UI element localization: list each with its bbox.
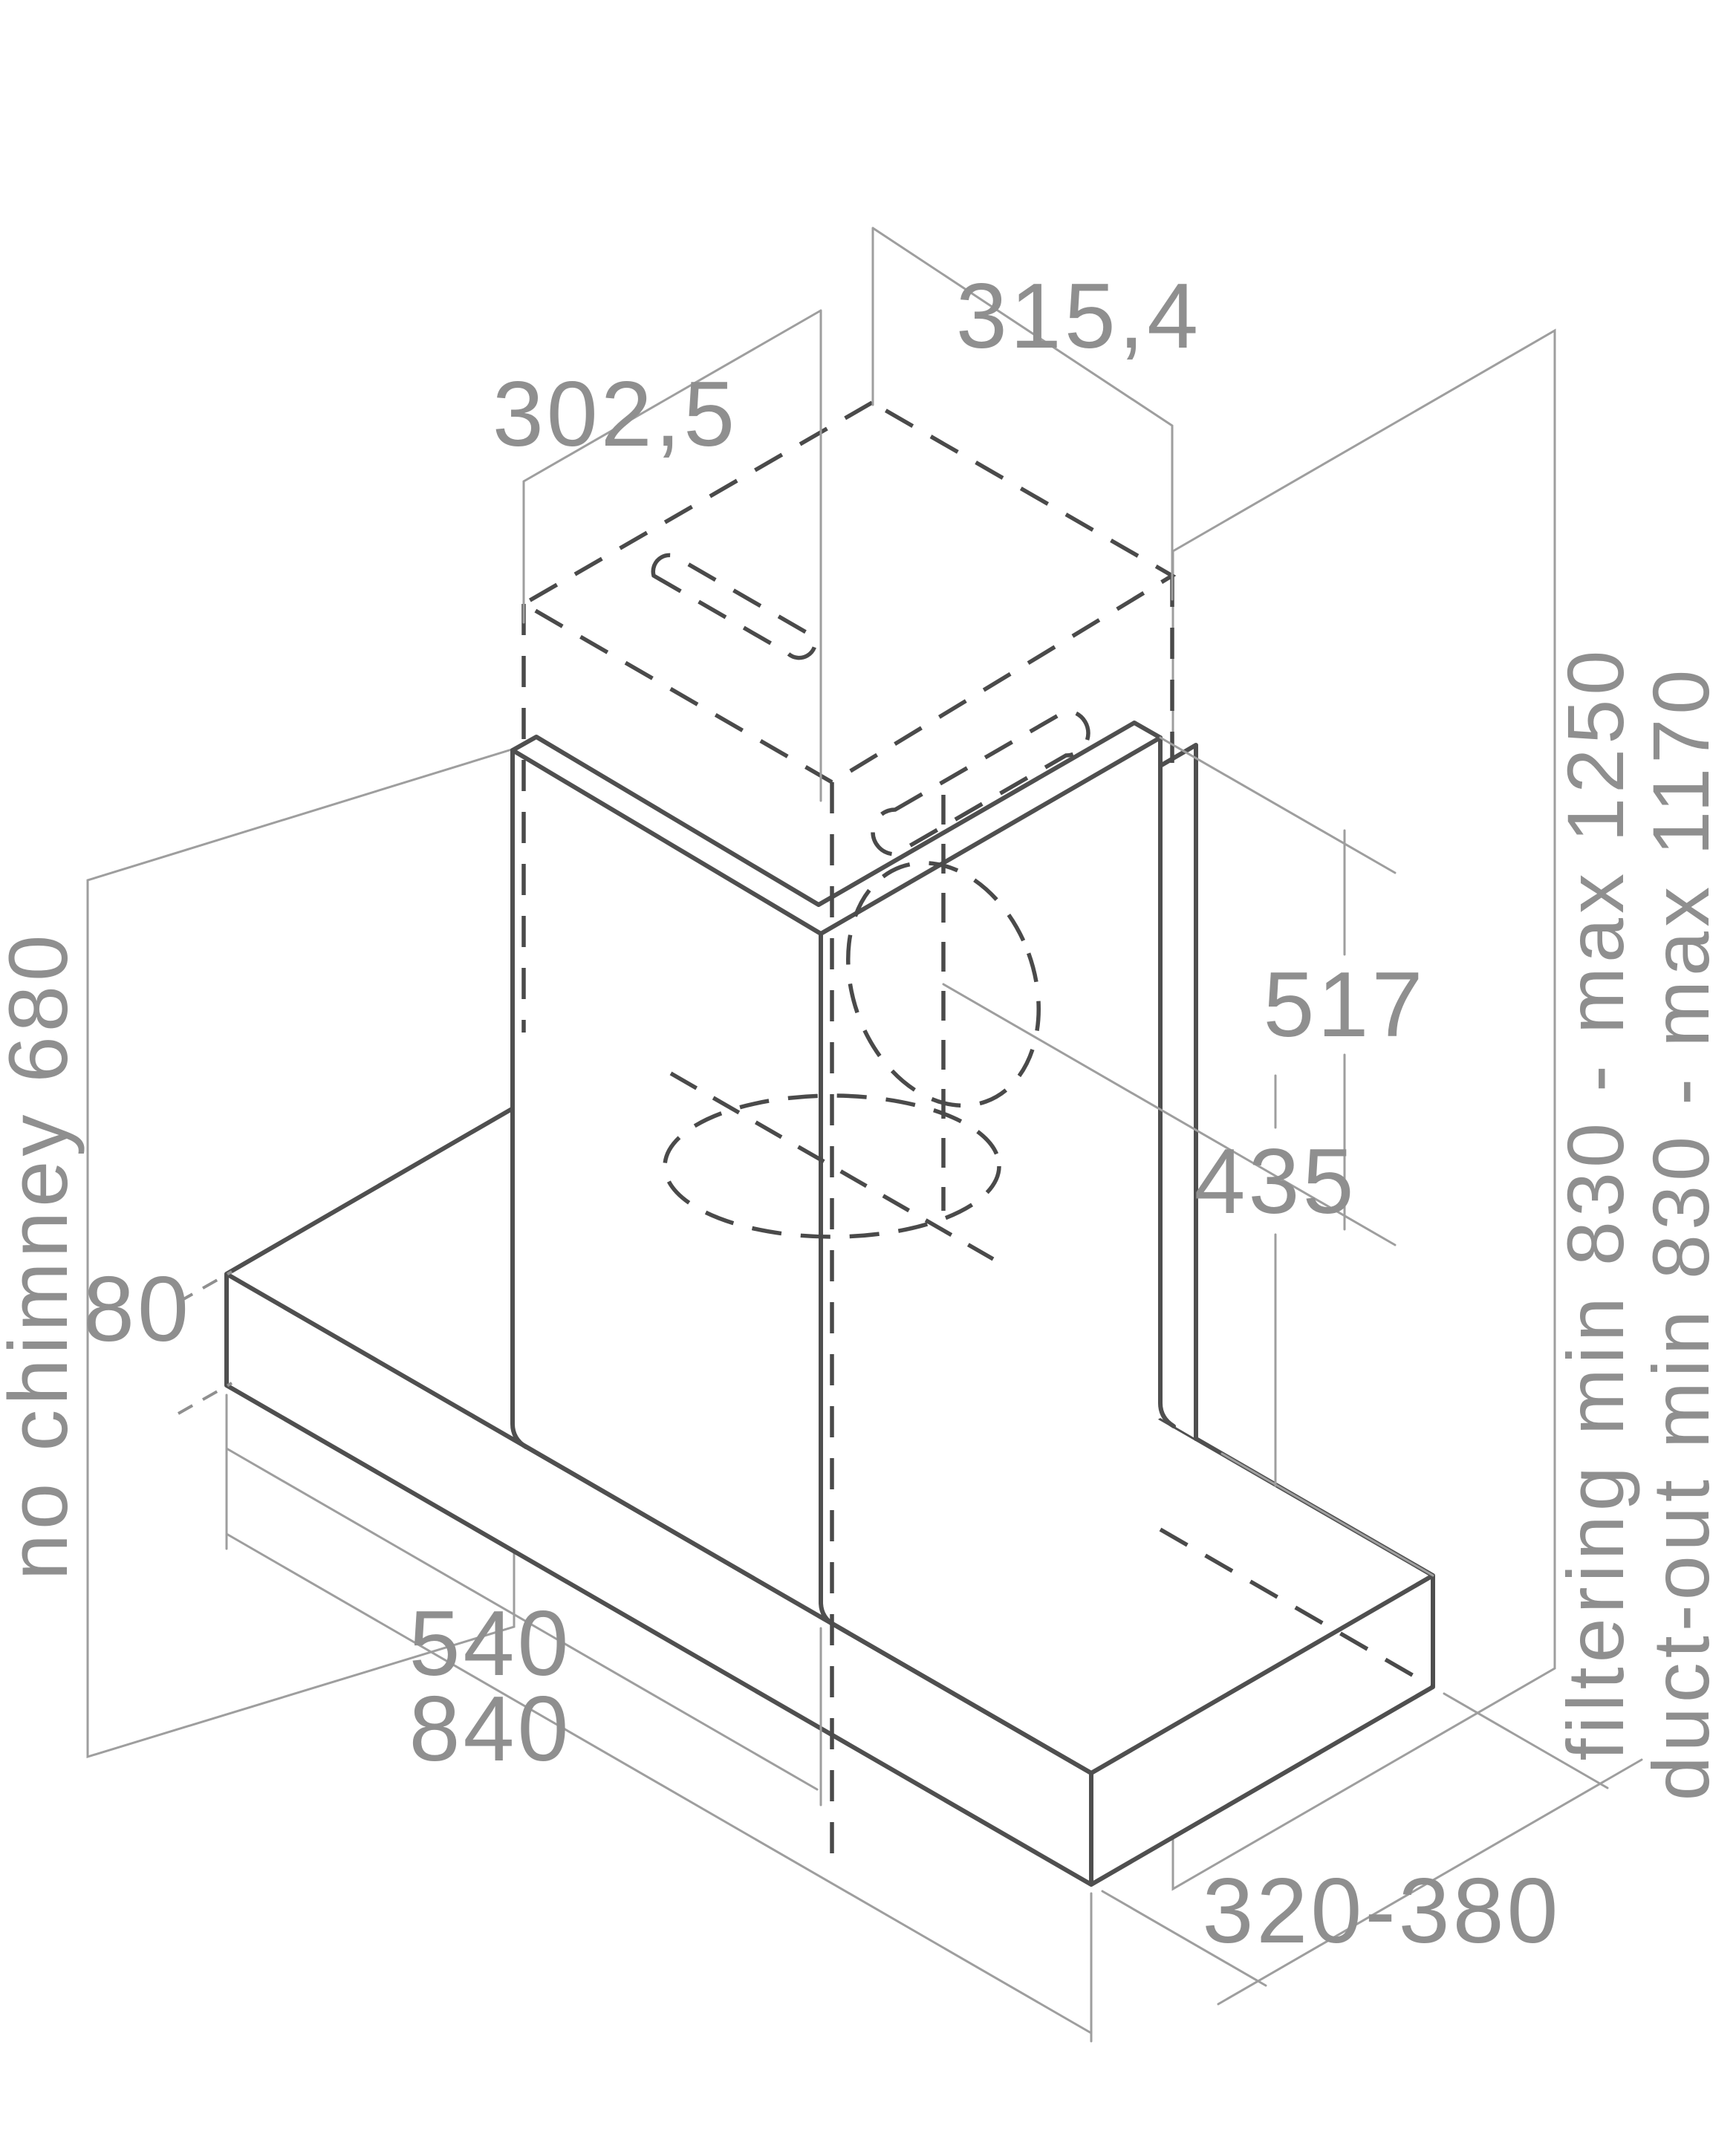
label-840: 840 — [409, 1678, 572, 1781]
label-filtering-range: filtering min 830 - max 1250 — [1550, 646, 1640, 1761]
hood-dimension-diagram: 302,5 315,4 517 435 80 540 840 320-380 n… — [0, 0, 1736, 2143]
label-depth-range: 320-380 — [1202, 1860, 1561, 1962]
label-517: 517 — [1264, 954, 1426, 1056]
label-duct-out-range: duct-out min 830 - max 1170 — [1636, 666, 1726, 1801]
technical-drawing-page: 302,5 315,4 517 435 80 540 840 320-380 n… — [0, 0, 1736, 2143]
label-80: 80 — [83, 1258, 192, 1361]
label-435: 435 — [1194, 1131, 1357, 1233]
label-no-chimney: no chimney 680 — [0, 931, 85, 1581]
label-chimney-depth: 315,4 — [956, 265, 1201, 368]
chimney-top-slot — [653, 555, 815, 657]
label-chimney-width: 302,5 — [492, 363, 738, 466]
